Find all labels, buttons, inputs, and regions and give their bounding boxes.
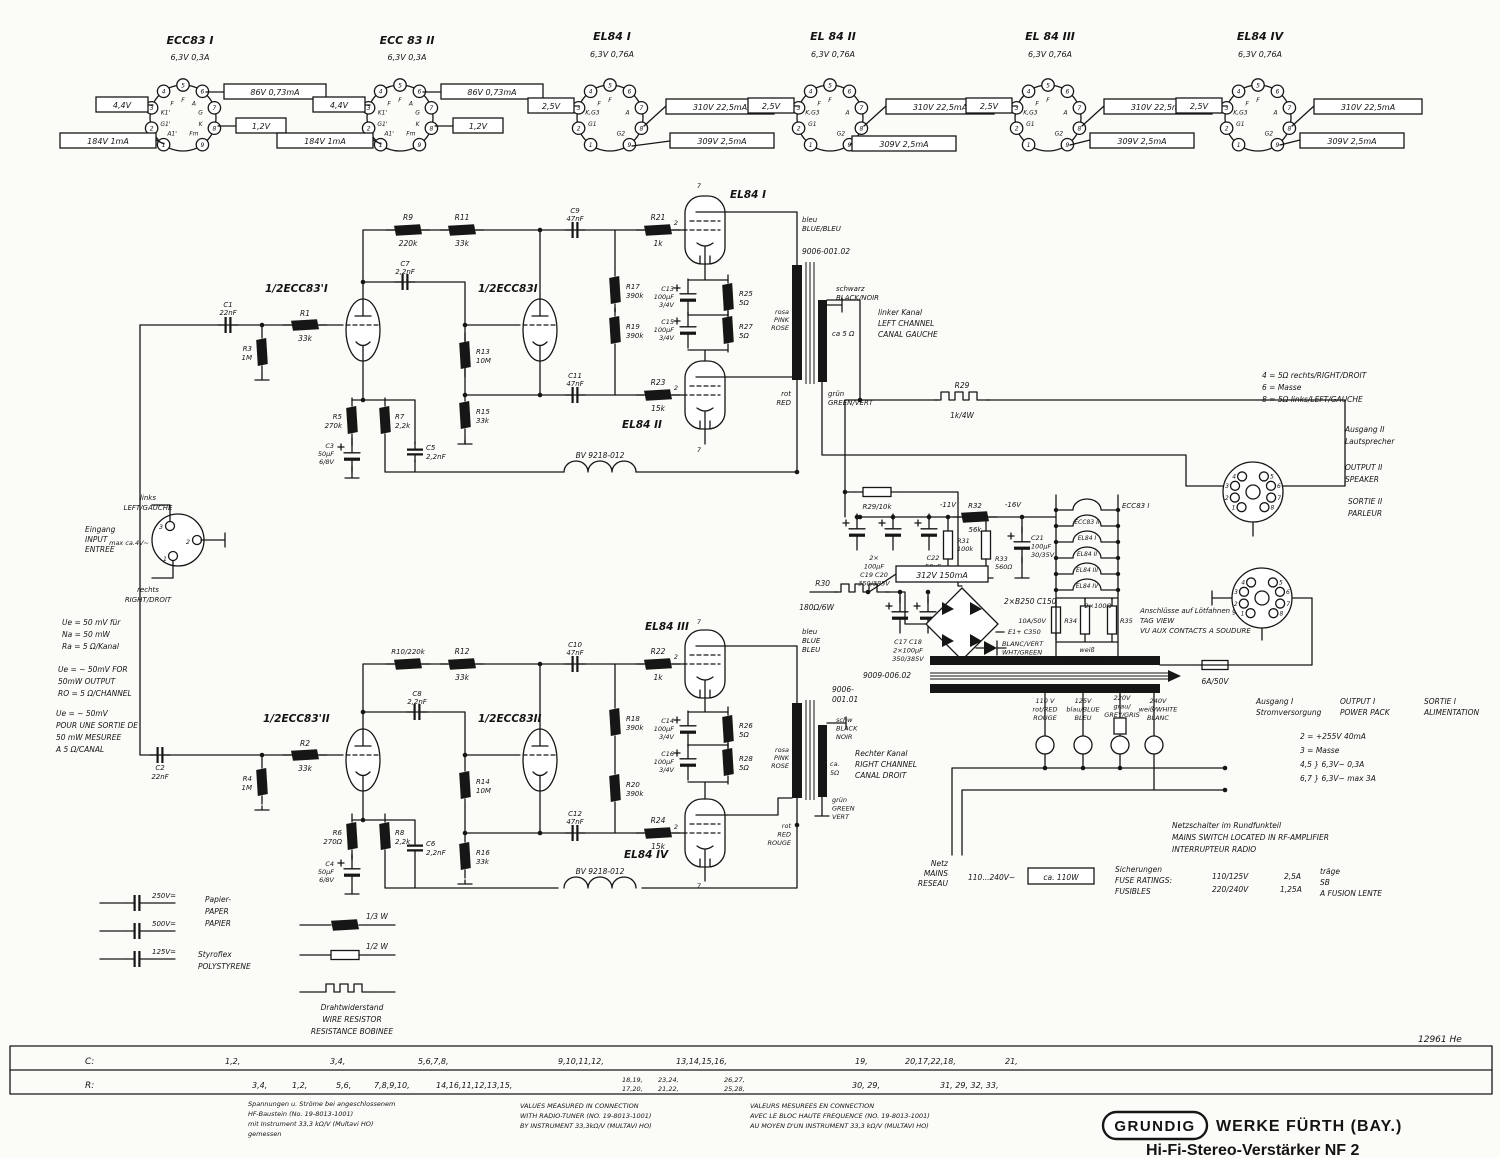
- svg-text:G1: G1: [588, 121, 596, 128]
- svg-text:33k: 33k: [476, 417, 490, 425]
- svg-text:A: A: [625, 110, 630, 117]
- svg-text:C10: C10: [568, 641, 582, 649]
- svg-text:R25: R25: [739, 290, 753, 298]
- svg-text:8: 8: [1271, 504, 1275, 511]
- svg-text:F: F: [398, 97, 402, 104]
- svg-text:8: 8: [859, 126, 863, 133]
- svg-text:R35: R35: [1120, 617, 1133, 625]
- svg-text:R20: R20: [626, 781, 640, 789]
- svg-text:R23: R23: [651, 378, 666, 387]
- row-label-resistors: R:: [85, 1081, 94, 1091]
- svg-text:5Ω: 5Ω: [739, 299, 749, 307]
- svg-text:K1': K1': [161, 110, 171, 117]
- svg-text:390k: 390k: [626, 292, 644, 300]
- svg-text:4: 4: [1027, 89, 1031, 96]
- voltage-callout: 86V 0,73mA: [250, 88, 299, 97]
- mains-voltage-range: 110...240V~: [968, 873, 1015, 882]
- svg-text:9: 9: [627, 142, 631, 149]
- cap-type-paper: Papier-PAPERPAPIER: [205, 895, 231, 928]
- voltage-callout: 4,4V: [113, 101, 132, 110]
- svg-text:220/240V: 220/240V: [1212, 885, 1249, 894]
- svg-text:A: A: [1063, 110, 1068, 117]
- tap-110v: 110 Vrot/REDROUGE: [1032, 697, 1057, 722]
- svg-text:5: 5: [398, 82, 402, 89]
- svg-text:R21: R21: [651, 213, 666, 222]
- svg-text:G2: G2: [1265, 130, 1274, 137]
- svg-text:5: 5: [828, 82, 832, 89]
- svg-text:56k: 56k: [969, 526, 983, 534]
- power-consumption: ca. 110W: [1043, 873, 1079, 882]
- svg-text:R29/10k: R29/10k: [862, 503, 892, 511]
- svg-text:5: 5: [1256, 82, 1260, 89]
- svg-text:7: 7: [429, 105, 433, 112]
- svg-text:R18: R18: [626, 715, 640, 723]
- svg-text:2,5V: 2,5V: [1190, 102, 1209, 111]
- svg-text:G2: G2: [837, 130, 846, 137]
- svg-text:5: 5: [181, 82, 185, 89]
- wattage-third-watt: 1/3 W: [366, 912, 388, 921]
- svg-text:1: 1: [1237, 142, 1241, 149]
- svg-text:6: 6: [1286, 589, 1290, 596]
- svg-text:EL84 III: EL84 III: [645, 621, 689, 633]
- svg-text:3: 3: [159, 523, 163, 531]
- svg-text:G1: G1: [808, 121, 816, 128]
- svg-text:2,2nF: 2,2nF: [407, 698, 428, 706]
- svg-text:G2: G2: [1055, 130, 1064, 137]
- svg-text:3: 3: [150, 105, 154, 112]
- svg-text:6,3V 0,76A: 6,3V 0,76A: [590, 50, 634, 59]
- svg-text:K,G3: K,G3: [585, 110, 599, 117]
- svg-text:G1': G1': [160, 121, 170, 128]
- svg-text:10M: 10M: [476, 787, 491, 795]
- svg-text:270k: 270k: [325, 422, 343, 430]
- svg-text:4: 4: [589, 89, 593, 96]
- svg-text:R16: R16: [476, 849, 490, 857]
- svg-text:270Ω: 270Ω: [323, 838, 342, 846]
- svg-text:110/125V: 110/125V: [1212, 872, 1249, 881]
- svg-text:33k: 33k: [298, 764, 313, 773]
- svg-text:C2: C2: [155, 764, 165, 772]
- svg-text:1/2ECC83II: 1/2ECC83II: [478, 713, 542, 725]
- svg-text:EL 84 III: EL 84 III: [1025, 30, 1075, 43]
- row-label-capacitors: C:: [85, 1057, 94, 1067]
- svg-text:A: A: [191, 100, 196, 107]
- svg-text:R1: R1: [300, 309, 310, 318]
- svg-text:310V 22,5mA: 310V 22,5mA: [693, 103, 747, 112]
- svg-text:20,17,22,18,: 20,17,22,18,: [905, 1057, 956, 1066]
- svg-text:2: 2: [1225, 495, 1229, 502]
- svg-text:4,4V: 4,4V: [330, 101, 349, 110]
- svg-text:A: A: [408, 100, 413, 107]
- svg-text:EL84 I: EL84 I: [593, 30, 631, 43]
- svg-text:3: 3: [1234, 589, 1238, 596]
- svg-text:1k: 1k: [653, 239, 663, 248]
- svg-text:R7: R7: [395, 413, 405, 421]
- svg-text:2: 2: [186, 538, 190, 546]
- svg-text:390k: 390k: [626, 790, 644, 798]
- svg-text:5Ω: 5Ω: [739, 731, 749, 739]
- svg-text:30, 29,: 30, 29,: [852, 1081, 880, 1090]
- svg-text:309V 2,5mA: 309V 2,5mA: [1327, 137, 1376, 146]
- svg-text:6,3V 0,3A: 6,3V 0,3A: [388, 53, 427, 62]
- svg-text:EL84 IV: EL84 IV: [624, 849, 669, 861]
- svg-text:R26: R26: [739, 722, 753, 730]
- svg-text:A: A: [845, 110, 850, 117]
- svg-text:G1: G1: [1236, 121, 1244, 128]
- svg-text:100k: 100k: [957, 545, 973, 553]
- svg-text:14,16,11,12,13,15,: 14,16,11,12,13,15,: [436, 1081, 512, 1090]
- svg-text:7,8,9,10,: 7,8,9,10,: [374, 1081, 410, 1090]
- svg-text:7: 7: [639, 105, 643, 112]
- svg-text:ECC83 II: ECC83 II: [1074, 519, 1099, 526]
- svg-text:F: F: [1035, 100, 1039, 107]
- svg-text:2: 2: [674, 219, 678, 227]
- svg-text:2,2k: 2,2k: [395, 422, 411, 430]
- svg-text:7: 7: [1277, 495, 1281, 502]
- svg-text:3: 3: [367, 105, 371, 112]
- svg-text:1k: 1k: [653, 673, 663, 682]
- svg-text:R24: R24: [651, 816, 666, 825]
- svg-text:R4: R4: [243, 775, 252, 783]
- svg-text:R5: R5: [333, 413, 343, 421]
- tube-heater-rating: 6,3V 0,3A: [171, 53, 210, 62]
- svg-text:6A/50V: 6A/50V: [1201, 677, 1229, 686]
- svg-text:9: 9: [1065, 142, 1069, 149]
- svg-text:1: 1: [589, 142, 593, 149]
- svg-text:R12: R12: [455, 647, 470, 656]
- svg-text:47nF: 47nF: [566, 818, 584, 826]
- svg-text:2: 2: [150, 126, 154, 133]
- svg-text:EL84 III: EL84 III: [1076, 567, 1098, 574]
- svg-text:6: 6: [847, 89, 851, 96]
- svg-text:6: 6: [1275, 89, 1279, 96]
- svg-text:500V=: 500V=: [152, 920, 176, 928]
- svg-text:7: 7: [859, 105, 863, 112]
- svg-text:310V 22,5mA: 310V 22,5mA: [1341, 103, 1395, 112]
- svg-text:R9: R9: [403, 213, 413, 222]
- svg-text:310V 22,5mA: 310V 22,5mA: [913, 103, 967, 112]
- svg-text:2: 2: [577, 126, 581, 133]
- svg-text:R14: R14: [476, 778, 490, 786]
- svg-text:33k: 33k: [455, 239, 470, 248]
- voltage-minus-16: -16V: [1005, 501, 1022, 509]
- svg-text:F: F: [387, 100, 391, 107]
- svg-text:6: 6: [1065, 89, 1069, 96]
- svg-text:2: 2: [1234, 601, 1238, 608]
- svg-text:7: 7: [1286, 601, 1290, 608]
- svg-text:8: 8: [1280, 610, 1284, 617]
- voltage-callout: 184V 1mA: [87, 137, 129, 146]
- firm-name: WERKE FÜRTH (BAY.): [1216, 1116, 1402, 1135]
- voltage-callout: 1,2V: [252, 122, 271, 131]
- svg-text:C9: C9: [570, 207, 580, 215]
- svg-text:31, 29, 32, 33,: 31, 29, 32, 33,: [940, 1081, 999, 1090]
- svg-text:13,14,15,16,: 13,14,15,16,: [676, 1057, 727, 1066]
- wattage-half-watt: 1/2 W: [366, 942, 388, 951]
- svg-text:9: 9: [200, 142, 204, 149]
- e1-label: E1+ C350: [1008, 628, 1041, 636]
- input-max-level: max ca.4V~: [109, 539, 149, 547]
- svg-text:EL84 I: EL84 I: [1078, 535, 1097, 542]
- svg-text:R31: R31: [957, 537, 970, 545]
- svg-text:F: F: [170, 100, 174, 107]
- svg-text:309V 2,5mA: 309V 2,5mA: [879, 140, 928, 149]
- svg-text:3,4,: 3,4,: [330, 1057, 345, 1066]
- svg-text:23,24,21,22,: 23,24,21,22,: [658, 1076, 679, 1093]
- svg-text:2,5V: 2,5V: [762, 102, 781, 111]
- brand-logo: GRUNDIG: [1114, 1118, 1195, 1135]
- svg-text:C7: C7: [400, 260, 410, 268]
- svg-text:125V=: 125V=: [152, 948, 176, 956]
- svg-text:BLANC/VERTWHT/GREEN: BLANC/VERTWHT/GREEN: [1002, 640, 1044, 657]
- svg-text:7: 7: [1077, 105, 1081, 112]
- svg-text:C1: C1: [223, 301, 232, 309]
- svg-text:2,2nF: 2,2nF: [395, 268, 416, 276]
- svg-text:22nF: 22nF: [151, 773, 169, 781]
- svg-text:4: 4: [1241, 580, 1245, 587]
- svg-text:1M: 1M: [242, 784, 253, 792]
- rectifier-type: 2×B250 C150: [1004, 597, 1057, 606]
- svg-text:BV 9218-012: BV 9218-012: [576, 451, 625, 460]
- svg-text:EL84 II: EL84 II: [622, 419, 662, 431]
- tube-title: ECC83 I: [167, 34, 214, 47]
- svg-text:F: F: [181, 97, 185, 104]
- svg-text:1: 1: [1241, 610, 1245, 617]
- document-number: 12961 He: [1418, 1035, 1462, 1045]
- svg-text:2: 2: [1015, 126, 1019, 133]
- svg-text:3,4,: 3,4,: [252, 1081, 267, 1090]
- hv-callout: 312V 150mA: [916, 571, 968, 580]
- svg-text:F: F: [1046, 97, 1050, 104]
- svg-text:2,5V: 2,5V: [980, 102, 999, 111]
- svg-text:K,G3: K,G3: [1023, 110, 1037, 117]
- svg-text:6: 6: [200, 89, 204, 96]
- svg-text:33k: 33k: [455, 673, 470, 682]
- impedance-label: ca.5Ω: [830, 760, 840, 777]
- svg-text:2: 2: [674, 653, 678, 661]
- svg-text:Fm: Fm: [189, 130, 198, 137]
- svg-text:ECC 83 II: ECC 83 II: [380, 34, 435, 47]
- svg-text:8: 8: [1287, 126, 1291, 133]
- svg-text:5: 5: [608, 82, 612, 89]
- svg-text:8: 8: [639, 126, 643, 133]
- svg-text:390k: 390k: [626, 332, 644, 340]
- svg-text:26,27,25,28,: 26,27,25,28,: [724, 1076, 745, 1093]
- svg-text:2,2nF: 2,2nF: [426, 849, 447, 857]
- svg-text:EL84 IV: EL84 IV: [1076, 583, 1099, 590]
- svg-text:1: 1: [163, 555, 167, 563]
- svg-text:R15: R15: [476, 408, 490, 416]
- model-name: Hi-Fi-Stereo-Verstärker NF 2: [1146, 1142, 1360, 1158]
- svg-text:A: A: [1273, 110, 1278, 117]
- output-socket-speaker: 12345678: [1223, 462, 1283, 522]
- output-socket-power: 12345678: [1232, 568, 1292, 628]
- svg-text:1: 1: [1232, 504, 1236, 511]
- svg-text:F: F: [817, 100, 821, 107]
- svg-text:C12: C12: [568, 810, 582, 818]
- svg-text:5: 5: [1046, 82, 1050, 89]
- svg-text:10M: 10M: [476, 357, 491, 365]
- svg-text:K1': K1': [378, 110, 388, 117]
- svg-text:EL84 IV: EL84 IV: [1237, 30, 1285, 43]
- svg-text:180Ω/6W: 180Ω/6W: [799, 603, 834, 612]
- svg-text:R10/220k: R10/220k: [391, 648, 425, 656]
- svg-text:BV 9218-012: BV 9218-012: [576, 867, 625, 876]
- svg-text:1,25A: 1,25A: [1280, 885, 1302, 894]
- svg-text:47nF: 47nF: [566, 380, 584, 388]
- cap-c17-c18-label: C17 C182×100µF350/385V: [892, 638, 924, 663]
- svg-text:F: F: [608, 97, 612, 104]
- svg-text:R13: R13: [476, 348, 490, 356]
- svg-text:5: 5: [1270, 474, 1274, 481]
- svg-text:C6: C6: [426, 840, 436, 848]
- svg-text:EL84 I: EL84 I: [730, 189, 766, 201]
- svg-text:3: 3: [1225, 483, 1229, 490]
- svg-text:8: 8: [1077, 126, 1081, 133]
- svg-text:1,2,: 1,2,: [225, 1057, 240, 1066]
- svg-text:EL 84 II: EL 84 II: [810, 30, 856, 43]
- svg-text:G1: G1: [1026, 121, 1034, 128]
- svg-text:R28: R28: [739, 755, 753, 763]
- svg-text:250V=: 250V=: [152, 892, 176, 900]
- svg-text:R11: R11: [455, 213, 470, 222]
- r34-r35-value: 2×100Ω: [1085, 602, 1112, 610]
- svg-text:R3: R3: [243, 345, 252, 353]
- svg-text:4: 4: [809, 89, 813, 96]
- impedance-label: ca 5 Ω: [832, 330, 855, 338]
- svg-text:A1': A1': [166, 130, 177, 137]
- svg-text:33k: 33k: [298, 334, 313, 343]
- svg-text:1M: 1M: [242, 354, 253, 362]
- svg-text:R22: R22: [651, 647, 666, 656]
- svg-text:R19: R19: [626, 323, 640, 331]
- svg-text:G1': G1': [377, 121, 387, 128]
- svg-text:2,5A: 2,5A: [1284, 872, 1301, 881]
- svg-text:47nF: 47nF: [566, 649, 584, 657]
- svg-text:21,: 21,: [1005, 1057, 1018, 1066]
- svg-text:2: 2: [797, 126, 801, 133]
- svg-text:F: F: [828, 97, 832, 104]
- svg-text:5,6,: 5,6,: [336, 1081, 351, 1090]
- svg-text:R32: R32: [968, 502, 982, 510]
- svg-text:220k: 220k: [399, 239, 418, 248]
- svg-text:5Ω: 5Ω: [739, 764, 749, 772]
- svg-text:309V 2,5mA: 309V 2,5mA: [1117, 137, 1166, 146]
- heater-fuse-rating: 10A/50V: [1018, 617, 1046, 625]
- svg-text:5: 5: [1279, 580, 1283, 587]
- svg-text:6,3V 0,76A: 6,3V 0,76A: [811, 50, 855, 59]
- svg-text:A1': A1': [383, 130, 394, 137]
- svg-text:2: 2: [1225, 126, 1229, 133]
- mains-transformer-part: 9009-006.02: [863, 671, 911, 680]
- svg-text:5Ω: 5Ω: [739, 332, 749, 340]
- svg-text:EL84 II: EL84 II: [1077, 551, 1097, 558]
- svg-text:22nF: 22nF: [219, 309, 237, 317]
- svg-text:2,5V: 2,5V: [542, 102, 561, 111]
- voltage-minus-11: -11V: [940, 501, 957, 509]
- svg-text:1/2ECC83'I: 1/2ECC83'I: [265, 283, 328, 295]
- svg-text:1/2ECC83I: 1/2ECC83I: [478, 283, 538, 295]
- svg-text:9: 9: [1275, 142, 1279, 149]
- svg-text:1,2,: 1,2,: [292, 1081, 307, 1090]
- svg-text:1k/4W: 1k/4W: [950, 411, 974, 420]
- svg-text:Fm: Fm: [406, 130, 415, 137]
- svg-text:R2: R2: [300, 739, 310, 748]
- svg-text:C11: C11: [568, 372, 582, 380]
- svg-text:9: 9: [847, 142, 851, 149]
- svg-text:6: 6: [417, 89, 421, 96]
- svg-text:F: F: [1245, 100, 1249, 107]
- svg-text:18,19,17,20,: 18,19,17,20,: [622, 1076, 643, 1093]
- svg-text:2: 2: [674, 823, 678, 831]
- svg-text:47nF: 47nF: [566, 215, 584, 223]
- measurement-note-en: VALUES MEASURED IN CONNECTIONWITH RADIO-…: [520, 1102, 652, 1130]
- svg-text:6,3V 0,76A: 6,3V 0,76A: [1028, 50, 1072, 59]
- svg-text:R6: R6: [333, 829, 343, 837]
- svg-text:5,6,7,8,: 5,6,7,8,: [418, 1057, 449, 1066]
- svg-text:1: 1: [1027, 142, 1031, 149]
- svg-text:309V 2,5mA: 309V 2,5mA: [697, 137, 746, 146]
- svg-text:6,3V 0,76A: 6,3V 0,76A: [1238, 50, 1282, 59]
- svg-text:7: 7: [1287, 105, 1291, 112]
- svg-text:G: G: [415, 110, 420, 117]
- svg-text:R27: R27: [739, 323, 753, 331]
- transformer-part-number: 9006-001.02: [802, 247, 850, 256]
- svg-text:C8: C8: [412, 690, 422, 698]
- svg-text:9: 9: [417, 142, 421, 149]
- svg-text:R34: R34: [1064, 617, 1077, 625]
- svg-text:R8: R8: [395, 829, 405, 837]
- svg-text:4: 4: [379, 89, 383, 96]
- schematic-page: ECC83 I 6,3V 0,3A 1A1'2G1'3K1'4F5F6A7G8K…: [0, 0, 1500, 1158]
- svg-text:K,G3: K,G3: [1233, 110, 1247, 117]
- svg-text:9,10,11,12,: 9,10,11,12,: [558, 1057, 604, 1066]
- svg-text:C5: C5: [426, 444, 436, 452]
- svg-text:2: 2: [367, 126, 371, 133]
- svg-text:8: 8: [429, 126, 433, 133]
- svg-text:7: 7: [212, 105, 216, 112]
- svg-text:6: 6: [627, 89, 631, 96]
- svg-text:15k: 15k: [651, 404, 666, 413]
- svg-text:R33: R33: [995, 555, 1008, 563]
- svg-text:560Ω: 560Ω: [995, 563, 1012, 571]
- svg-text:2: 2: [674, 384, 678, 392]
- svg-text:6: 6: [1277, 483, 1281, 490]
- heater-tube-label: ECC83 I: [1122, 502, 1149, 510]
- svg-text:184V 1mA: 184V 1mA: [304, 137, 346, 146]
- svg-text:4: 4: [162, 89, 166, 96]
- svg-text:R17: R17: [626, 283, 640, 291]
- wire-resistor-legend: DrahtwiderstandWIRE RESISTORRESISTANCE B…: [311, 1003, 393, 1036]
- svg-text:1,2V: 1,2V: [469, 122, 488, 131]
- svg-text:K,G3: K,G3: [805, 110, 819, 117]
- svg-text:86V 0,73mA: 86V 0,73mA: [467, 88, 516, 97]
- svg-text:G: G: [198, 110, 203, 117]
- svg-text:R30: R30: [815, 579, 830, 588]
- svg-text:F: F: [1256, 97, 1260, 104]
- svg-text:G2: G2: [617, 130, 626, 137]
- svg-text:4: 4: [1237, 89, 1241, 96]
- svg-text:1/2ECC83'II: 1/2ECC83'II: [263, 713, 330, 725]
- svg-text:R29: R29: [955, 381, 970, 390]
- svg-text:1: 1: [809, 142, 813, 149]
- svg-text:390k: 390k: [626, 724, 644, 732]
- svg-text:19,: 19,: [855, 1057, 868, 1066]
- svg-text:33k: 33k: [476, 858, 490, 866]
- svg-text:4: 4: [1232, 474, 1236, 481]
- svg-text:2,2nF: 2,2nF: [426, 453, 447, 461]
- svg-text:8: 8: [212, 126, 216, 133]
